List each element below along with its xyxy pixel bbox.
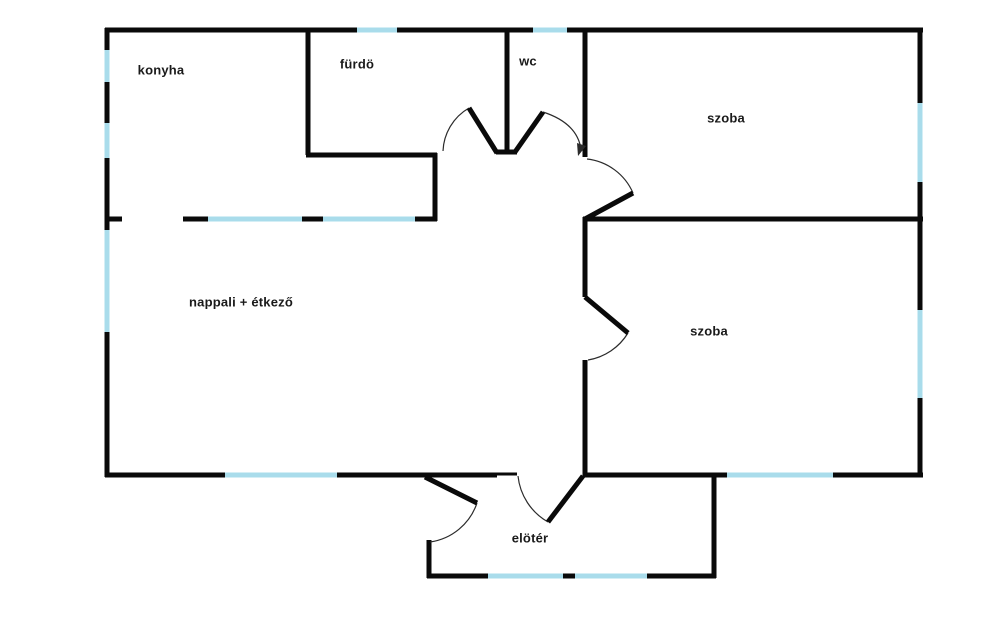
wc-door-swing-arc bbox=[543, 112, 581, 149]
front-door-leaf bbox=[425, 477, 477, 503]
room-label-nappali: nappali + étkező bbox=[189, 295, 293, 310]
szoba-bottom-door-swing-arc bbox=[588, 333, 628, 360]
room-label-eloter: elötér bbox=[512, 531, 549, 546]
eloter-door-leaf bbox=[548, 476, 583, 522]
room-label-szoba-top: szoba bbox=[707, 111, 745, 126]
room-label-szoba-bottom: szoba bbox=[690, 324, 728, 339]
front-door-swing-arc bbox=[430, 503, 477, 542]
floor-plan-drawing bbox=[0, 0, 1000, 629]
szoba-top-door-swing-arc bbox=[587, 159, 633, 193]
furdo-door-leaf bbox=[469, 108, 497, 153]
furdo-door-swing-arc bbox=[443, 108, 469, 151]
szoba-bottom-door-leaf bbox=[585, 297, 628, 333]
szoba-top-door-leaf bbox=[585, 193, 633, 219]
room-label-furdo: fürdö bbox=[340, 57, 374, 72]
floor-plan: konyha fürdö wc szoba nappali + étkező s… bbox=[0, 0, 1000, 629]
eloter-door-swing-arc bbox=[518, 476, 548, 522]
room-label-konyha: konyha bbox=[138, 63, 185, 78]
room-label-wc: wc bbox=[519, 54, 537, 69]
wc-door-leaf bbox=[515, 112, 543, 152]
